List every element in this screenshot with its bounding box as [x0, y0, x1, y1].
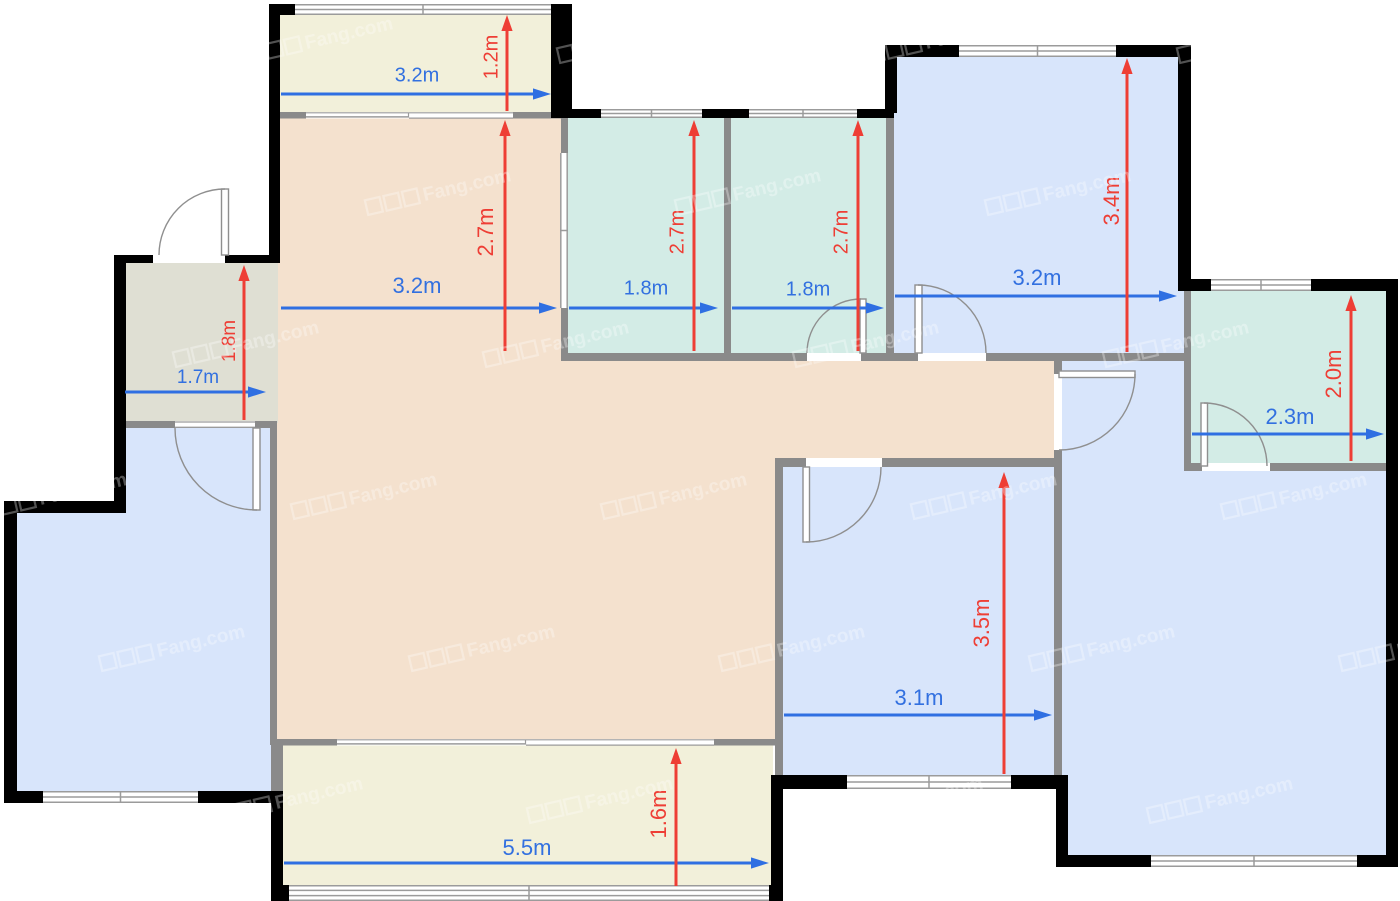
svg-text:2.0m: 2.0m [1321, 350, 1346, 399]
svg-text:1.8m: 1.8m [624, 277, 668, 299]
svg-text:3.5m: 3.5m [969, 599, 994, 648]
svg-text:2.7m: 2.7m [473, 208, 498, 257]
svg-text:1.7m: 1.7m [177, 367, 219, 388]
svg-text:Fang.com: Fang.com [0, 13, 85, 54]
svg-text:3.1m: 3.1m [895, 685, 944, 710]
svg-text:2.7m: 2.7m [830, 210, 852, 254]
svg-text:3.2m: 3.2m [1013, 265, 1062, 290]
svg-text:3.2m: 3.2m [395, 64, 439, 86]
svg-text:3.2m: 3.2m [393, 273, 442, 298]
svg-text:1.2m: 1.2m [480, 35, 502, 79]
svg-text:2.3m: 2.3m [1266, 404, 1315, 429]
svg-text:Fang.com: Fang.com [613, 13, 705, 54]
svg-text:5.5m: 5.5m [503, 835, 552, 860]
svg-text:2.7m: 2.7m [666, 210, 688, 254]
svg-text:Fang.com: Fang.com [1351, 165, 1400, 206]
svg-text:Fang.com: Fang.com [1233, 13, 1325, 54]
svg-text:1.8m: 1.8m [786, 278, 830, 300]
